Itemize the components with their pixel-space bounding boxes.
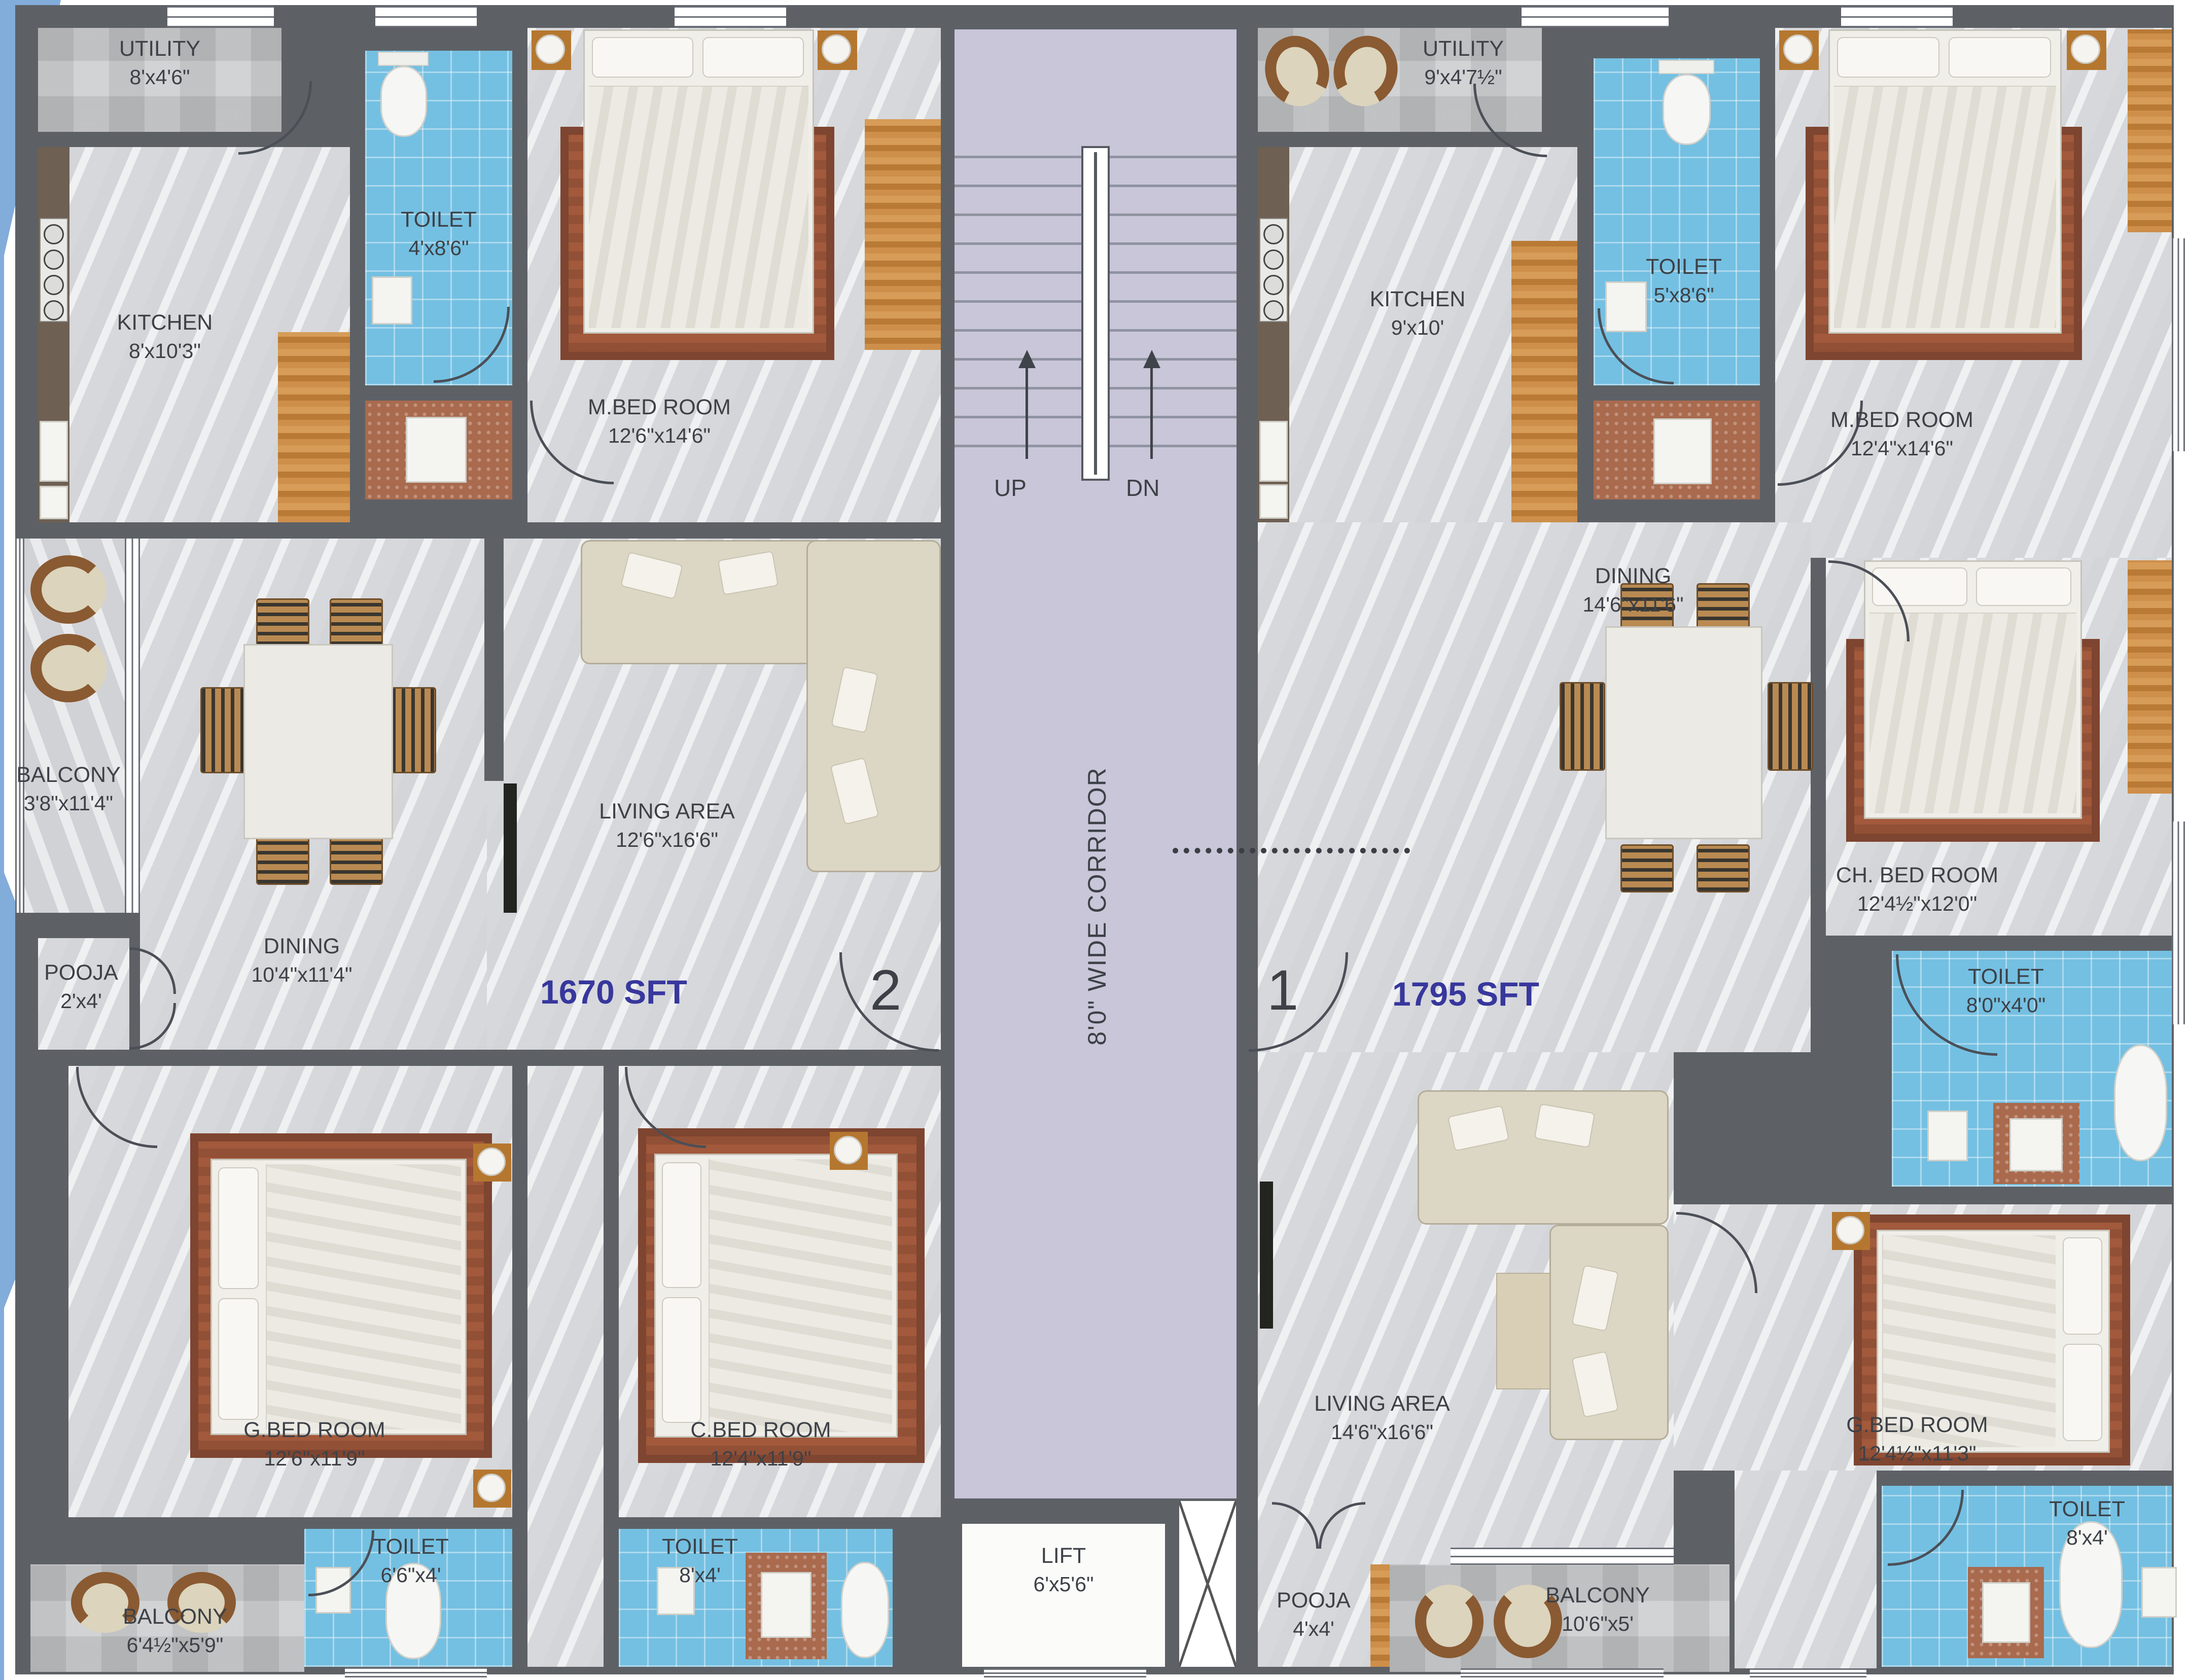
room-name: M.BED ROOM: [1795, 406, 2008, 435]
balcony-railing: [15, 539, 24, 913]
label-pooja-right: POOJA 4'x4': [1263, 1586, 1364, 1642]
double-bed: [1828, 29, 2062, 334]
label-master-bedroom-right: M.BED ROOM 12'4"x14'6": [1795, 406, 2008, 462]
pillow: [662, 1162, 701, 1288]
pillow: [1976, 567, 2071, 606]
room-name: TOILET: [1618, 253, 1750, 281]
balcony-chair: [30, 555, 107, 624]
room-name: LIFT: [982, 1542, 1145, 1570]
label-pooja-left: POOJA 2'x4': [28, 958, 134, 1015]
room-dim: 5'x8'6": [1618, 281, 1750, 309]
stair-handrail-line: [1094, 152, 1097, 475]
dining-chair: [1560, 682, 1605, 771]
blanket: [266, 1164, 461, 1429]
room-name: TOILET: [2024, 1495, 2150, 1524]
dining-chair: [330, 837, 383, 885]
room-name: DINING: [1549, 562, 1717, 591]
room-name: LIVING AREA: [1298, 1389, 1466, 1418]
label-balcony-side-left: BALCONY 3'8"x11'4": [0, 761, 152, 817]
room-dim: 6'4½"x5'9": [99, 1631, 251, 1659]
dn-arrow-head: [1143, 350, 1160, 368]
wardrobe: [865, 119, 941, 350]
room-dim: 14'6"x11'6": [1549, 591, 1717, 618]
label-living-left: LIVING AREA 12'6"x16'6": [583, 797, 751, 853]
pillow: [592, 37, 693, 78]
blanket: [709, 1159, 892, 1432]
label-master-bedroom-left: M.BED ROOM 12'6"x14'6": [553, 393, 766, 449]
lamp-icon: [822, 34, 851, 64]
label-child-bedroom-left: C.BED ROOM 12'4"x11'9": [659, 1416, 862, 1472]
wc-toilet-icon: [380, 66, 427, 137]
sink-icon: [1927, 1111, 1968, 1161]
wash-basin-icon: [761, 1572, 811, 1638]
burner-icon: [1263, 249, 1284, 270]
pillow: [662, 1297, 701, 1423]
pillow: [1837, 37, 1939, 78]
room-dim: 3'8"x11'4": [0, 790, 152, 817]
room-dim: 12'6"x16'6": [583, 826, 751, 853]
room-dim: 4'x8'6": [355, 234, 522, 262]
window: [375, 6, 477, 27]
window: [2172, 238, 2185, 451]
dining-chair: [256, 598, 309, 647]
dining-chair: [1620, 844, 1674, 892]
window: [984, 1668, 1146, 1677]
sofa: [806, 540, 941, 872]
passage-right: [1735, 1471, 1877, 1668]
window: [1522, 6, 1669, 27]
wc-tank-icon: [1658, 60, 1714, 74]
sink-icon: [2141, 1567, 2177, 1618]
kitchen-sink-icon: [40, 421, 68, 482]
label-dining-right: DINING 14'6"x11'6": [1549, 562, 1717, 618]
wash-basin-icon: [1982, 1582, 2030, 1643]
room-dim: 12'6"x14'6": [553, 422, 766, 449]
room-name: UTILITY: [76, 34, 243, 63]
passage-left: [527, 1066, 604, 1667]
dining-table: [243, 644, 393, 839]
room-dim: 14'6"x16'6": [1298, 1418, 1466, 1446]
room-name: CH. BED ROOM: [1811, 861, 2024, 890]
room-name: G.BED ROOM: [213, 1416, 416, 1445]
stove-icon: [1259, 218, 1288, 322]
room-dim: 12'4"x14'6": [1795, 435, 2008, 462]
room-dim: 6'6"x4': [345, 1561, 477, 1589]
door-number-unit1: 1: [1267, 957, 1298, 1023]
fridge-icon: [40, 486, 68, 519]
room-dim: 12'6"x11'9": [213, 1445, 416, 1472]
dining-chair: [1768, 682, 1813, 771]
room-name: TOILET: [355, 205, 522, 234]
wash-basin-icon: [1653, 418, 1712, 484]
label-child-bedroom-right: CH. BED ROOM 12'4½"x12'0": [1811, 861, 2024, 917]
window: [167, 6, 274, 27]
stove-icon: [40, 218, 68, 322]
balcony-chair: [1415, 1585, 1484, 1658]
burner-icon: [44, 224, 64, 244]
room-name: TOILET: [639, 1532, 761, 1561]
burner-icon: [1263, 300, 1284, 320]
room-name: POOJA: [1263, 1586, 1364, 1615]
label-kitchen-left: KITCHEN 8'x10'3": [86, 308, 243, 365]
room-dim: 12'4½"x11'3": [1806, 1440, 2029, 1467]
label-toilet-top-right: TOILET 5'x8'6": [1618, 253, 1750, 309]
room-name: KITCHEN: [1339, 285, 1496, 314]
label-toilet-guest-left: TOILET 6'6"x4': [345, 1532, 477, 1589]
door-frame: [1370, 1564, 1390, 1667]
corridor-label: 8'0" WIDE CORRIDOR: [1082, 678, 1112, 1134]
blanket: [1834, 86, 2056, 328]
up-arrow-head: [1018, 350, 1036, 368]
lamp-icon: [1783, 34, 1813, 64]
room-name: UTILITY: [1380, 34, 1547, 63]
wc-tank-icon: [378, 52, 429, 66]
label-balcony-bottom-left: BALCONY 6'4½"x5'9": [99, 1602, 251, 1659]
label-living-right: LIVING AREA 14'6"x16'6": [1298, 1389, 1466, 1446]
room-name: TOILET: [1922, 962, 2090, 991]
dining-chair: [1697, 844, 1750, 892]
window: [1841, 6, 1953, 27]
burner-icon: [44, 275, 64, 295]
room-name: KITCHEN: [86, 308, 243, 337]
dotted-line: [1173, 848, 1410, 854]
up-arrow: [1026, 368, 1028, 459]
room-name: BALCONY: [0, 761, 152, 790]
room-name: BALCONY: [1516, 1581, 1679, 1610]
room-name: DINING: [218, 932, 385, 961]
window: [1451, 1548, 1674, 1565]
window: [345, 1667, 487, 1677]
room-name: G.BED ROOM: [1806, 1411, 2029, 1440]
window: [1461, 1668, 1664, 1677]
wash-basin-icon: [406, 417, 467, 483]
room-name: M.BED ROOM: [553, 393, 766, 422]
room-dim: 8'x10'3": [86, 337, 243, 365]
window: [675, 6, 786, 27]
label-toilet-child-left: TOILET 8'x4': [639, 1532, 761, 1589]
label-kitchen-right: KITCHEN 9'x10': [1339, 285, 1496, 341]
up-label: UP: [994, 474, 1027, 502]
label-dining-left: DINING 10'4"x11'4": [218, 932, 385, 988]
room-name: TOILET: [345, 1532, 477, 1561]
wc-toilet-icon: [2114, 1045, 2167, 1161]
balcony-chair: [30, 634, 107, 702]
room-dim: 2'x4': [28, 987, 134, 1015]
lamp-icon: [477, 1148, 506, 1176]
area-label-unit1: 1795 SFT: [1392, 975, 1539, 1013]
pillow: [2063, 1344, 2102, 1441]
room-name: BALCONY: [99, 1602, 251, 1631]
wc-toilet-icon: [841, 1562, 889, 1658]
coffee-table: [1496, 1273, 1557, 1389]
lamp-icon: [536, 34, 565, 64]
room-dim: 8'x4': [639, 1561, 761, 1589]
pillow: [218, 1298, 259, 1420]
double-bed: [210, 1159, 467, 1435]
room-dim: 9'x4'7½": [1380, 63, 1547, 91]
kitchen-wardrobe: [278, 332, 350, 522]
room-dim: 12'4½"x12'0": [1811, 890, 2024, 917]
label-toilet-child-right: TOILET 8'0"x4'0": [1922, 962, 2090, 1019]
dining-chair: [391, 687, 436, 773]
area-label-unit2: 1670 SFT: [540, 973, 687, 1011]
room-dim: 8'x4': [2024, 1524, 2150, 1551]
wardrobe: [2128, 560, 2172, 794]
burner-icon: [44, 300, 64, 320]
label-guest-bedroom-right: G.BED ROOM 12'4½"x11'3": [1806, 1411, 2029, 1467]
double-bed: [654, 1154, 898, 1438]
floor-plan: UP DN 8'0" WIDE CORRIDOR LIFT 6'x5'6": [0, 0, 2189, 1680]
label-toilet-top-left: TOILET 4'x8'6": [355, 205, 522, 262]
burner-icon: [1263, 224, 1284, 244]
label-toilet-guest-right: TOILET 8'x4': [2024, 1495, 2150, 1551]
double-bed: [583, 29, 814, 334]
blanket: [589, 86, 808, 328]
label-balcony-bottom-right: BALCONY 10'6"x5': [1516, 1581, 1679, 1637]
lamp-icon: [1836, 1216, 1864, 1244]
dn-arrow: [1150, 368, 1153, 459]
room-dim: 9'x10': [1339, 314, 1496, 341]
room-dim: 6'x5'6": [982, 1570, 1145, 1598]
room-dim: 10'6"x5': [1516, 1610, 1679, 1637]
window: [2172, 821, 2185, 1024]
burner-icon: [44, 249, 64, 270]
room-name: POOJA: [28, 958, 134, 987]
pillow: [218, 1167, 259, 1289]
decorative-edge-line: [0, 0, 4, 1680]
dn-label: DN: [1126, 474, 1159, 502]
room-dim: 8'0"x4'0": [1922, 991, 2090, 1019]
lamp-icon: [477, 1474, 506, 1502]
lamp-icon: [2071, 34, 2100, 64]
tv-unit: [1260, 1182, 1273, 1329]
kitchen-wardrobe: [1511, 241, 1577, 522]
pillow: [2063, 1237, 2102, 1335]
wc-toilet-icon: [1663, 74, 1711, 145]
lamp-icon: [834, 1136, 862, 1164]
label-utility-right: UTILITY 9'x4'7½": [1380, 34, 1547, 91]
dining-chair: [200, 687, 246, 773]
wardrobe: [2128, 29, 2172, 232]
dining-table: [1605, 626, 1762, 839]
room-dim: 10'4"x11'4": [218, 961, 385, 988]
lift-label: LIFT 6'x5'6": [982, 1542, 1145, 1598]
wash-basin-icon: [2009, 1118, 2063, 1171]
door-number-unit2: 2: [870, 957, 901, 1023]
kitchen-sink-icon: [1259, 421, 1288, 482]
room-dim: 8'x4'6": [76, 63, 243, 91]
room-dim: 4'x4': [1263, 1615, 1364, 1642]
pillow: [702, 37, 804, 78]
burner-icon: [1263, 275, 1284, 295]
sink-icon: [372, 276, 412, 325]
tv-unit: [504, 783, 517, 913]
wall-stub: [484, 525, 504, 781]
window: [125, 539, 140, 913]
dining-chair: [256, 837, 309, 885]
window: [1750, 1668, 1866, 1677]
blanket: [1869, 613, 2076, 813]
room-dim: 12'4"x11'9": [659, 1445, 862, 1472]
room-name: C.BED ROOM: [659, 1416, 862, 1445]
label-utility-left: UTILITY 8'x4'6": [76, 34, 243, 91]
dining-chair: [330, 598, 383, 647]
fridge-icon: [1259, 484, 1288, 519]
duct-shaft: [1179, 1501, 1236, 1667]
pillow: [1949, 37, 2051, 78]
room-name: LIVING AREA: [583, 797, 751, 826]
label-guest-bedroom-left: G.BED ROOM 12'6"x11'9": [213, 1416, 416, 1472]
